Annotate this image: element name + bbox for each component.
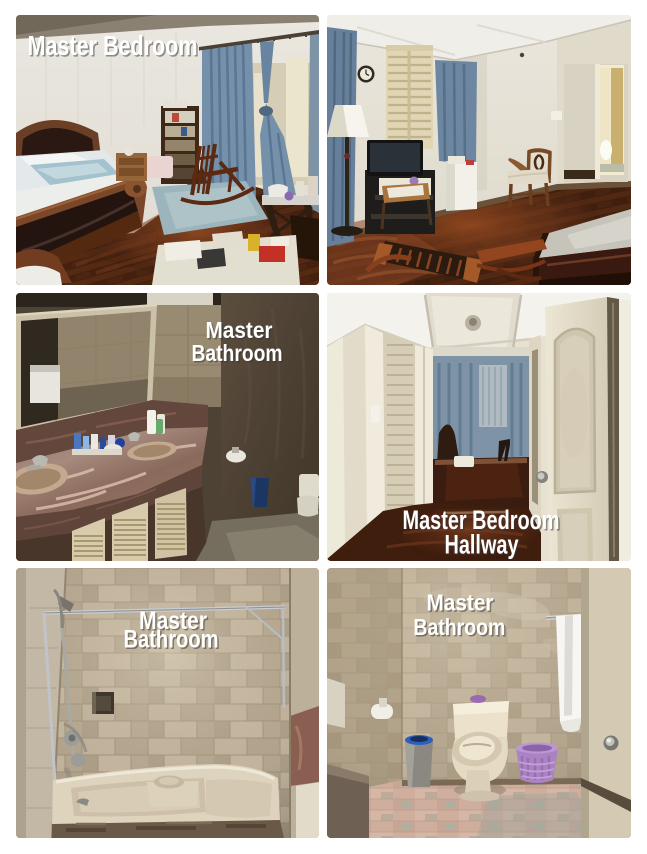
svg-text:Hallway: Hallway [445,530,519,560]
svg-text:Master Bedroom: Master Bedroom [28,30,198,61]
svg-text:Master: Master [427,589,494,615]
svg-text:Bathroom: Bathroom [192,340,283,366]
svg-text:Bathroom: Bathroom [413,614,505,640]
svg-text:Bathroom: Bathroom [124,626,219,654]
